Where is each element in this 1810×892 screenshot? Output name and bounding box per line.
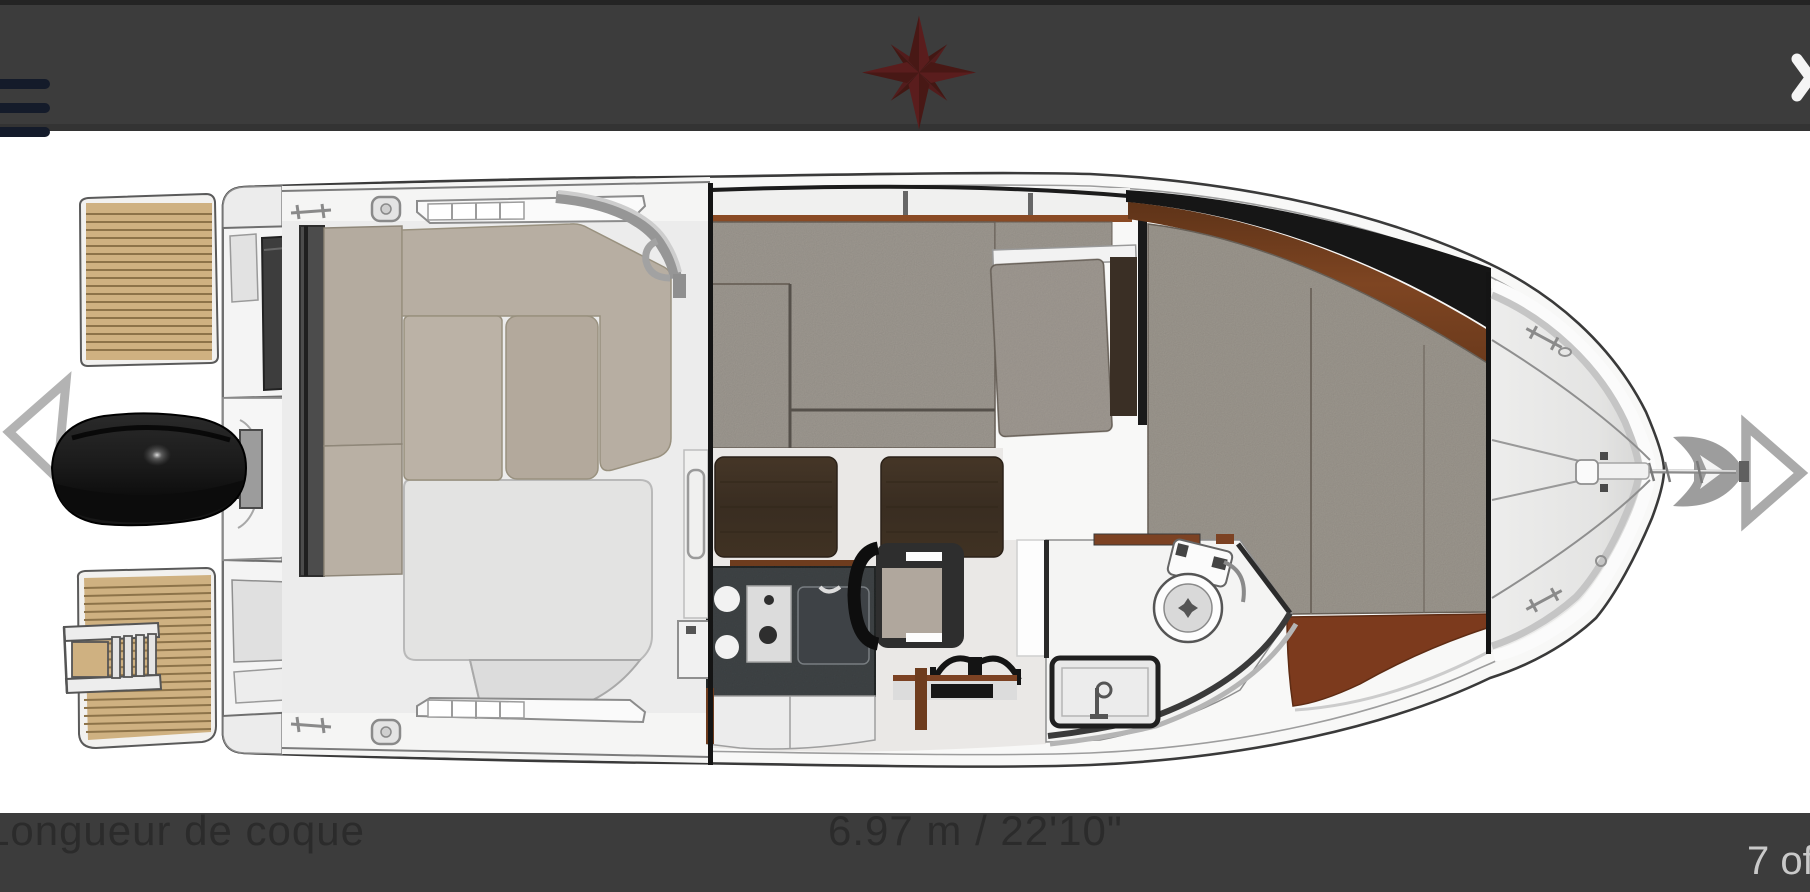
svg-text:6.97 m / 22'10": 6.97 m / 22'10" bbox=[828, 807, 1123, 854]
svg-text:Longueur de coque: Longueur de coque bbox=[0, 807, 365, 854]
svg-text:7 of 9: 7 of 9 bbox=[1747, 839, 1810, 883]
